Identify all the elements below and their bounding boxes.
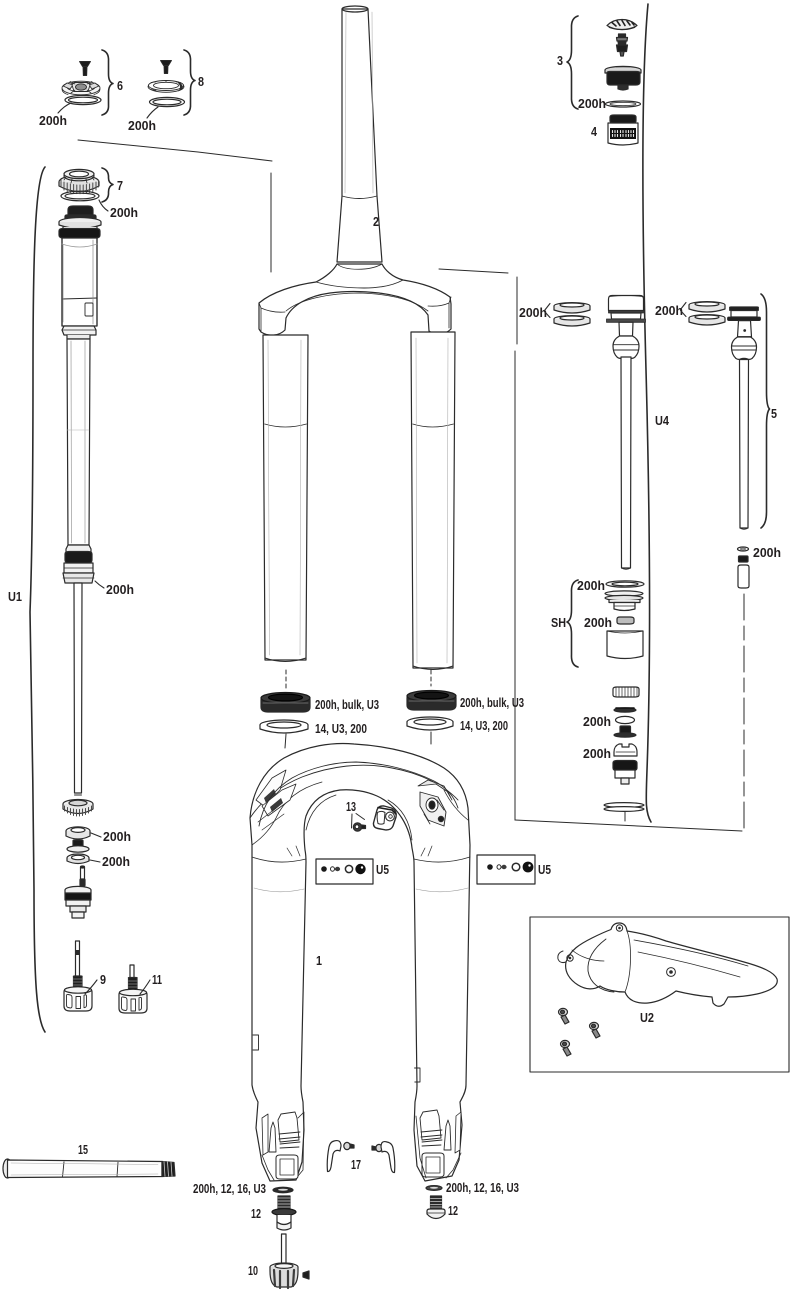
svg-text:15: 15 <box>78 1142 88 1157</box>
svg-text:4: 4 <box>591 124 598 139</box>
svg-text:200h: 200h <box>583 746 611 761</box>
svg-text:9: 9 <box>100 972 106 987</box>
svg-text:200h, bulk, U3: 200h, bulk, U3 <box>460 695 524 710</box>
svg-text:12: 12 <box>251 1206 261 1221</box>
svg-text:U5: U5 <box>538 862 551 877</box>
svg-text:200h, bulk, U3: 200h, bulk, U3 <box>315 697 379 712</box>
svg-text:200h: 200h <box>39 113 67 128</box>
svg-text:200h: 200h <box>753 545 781 560</box>
svg-text:200h: 200h <box>106 582 134 597</box>
svg-text:U4: U4 <box>655 413 670 428</box>
svg-text:200h: 200h <box>577 578 605 593</box>
svg-text:14, U3, 200: 14, U3, 200 <box>315 721 367 736</box>
svg-text:14, U3, 200: 14, U3, 200 <box>460 718 508 733</box>
svg-text:200h: 200h <box>583 714 611 729</box>
svg-text:2: 2 <box>373 214 379 229</box>
svg-text:200h: 200h <box>578 96 606 111</box>
svg-text:11: 11 <box>152 972 162 987</box>
svg-text:200h: 200h <box>584 615 612 630</box>
svg-text:U5: U5 <box>376 862 389 877</box>
svg-text:200h, 12, 16, U3: 200h, 12, 16, U3 <box>446 1180 519 1195</box>
svg-text:13: 13 <box>346 799 356 814</box>
svg-text:7: 7 <box>117 178 123 193</box>
svg-text:200h: 200h <box>128 118 156 133</box>
svg-text:200h: 200h <box>110 205 138 220</box>
svg-text:1: 1 <box>316 953 322 968</box>
svg-text:U1: U1 <box>8 589 22 604</box>
svg-text:200h: 200h <box>655 303 683 318</box>
svg-text:8: 8 <box>198 74 204 89</box>
svg-text:U2: U2 <box>640 1010 654 1025</box>
svg-text:10: 10 <box>248 1263 258 1278</box>
svg-text:200h: 200h <box>103 829 131 844</box>
svg-text:SH: SH <box>551 615 566 630</box>
svg-text:12: 12 <box>448 1203 458 1218</box>
svg-text:5: 5 <box>771 406 777 421</box>
svg-text:200h, 12, 16, U3: 200h, 12, 16, U3 <box>193 1181 266 1196</box>
svg-text:6: 6 <box>117 78 123 93</box>
svg-text:17: 17 <box>351 1157 361 1172</box>
svg-text:200h: 200h <box>102 854 130 869</box>
svg-text:3: 3 <box>557 53 563 68</box>
svg-text:200h: 200h <box>519 305 547 320</box>
